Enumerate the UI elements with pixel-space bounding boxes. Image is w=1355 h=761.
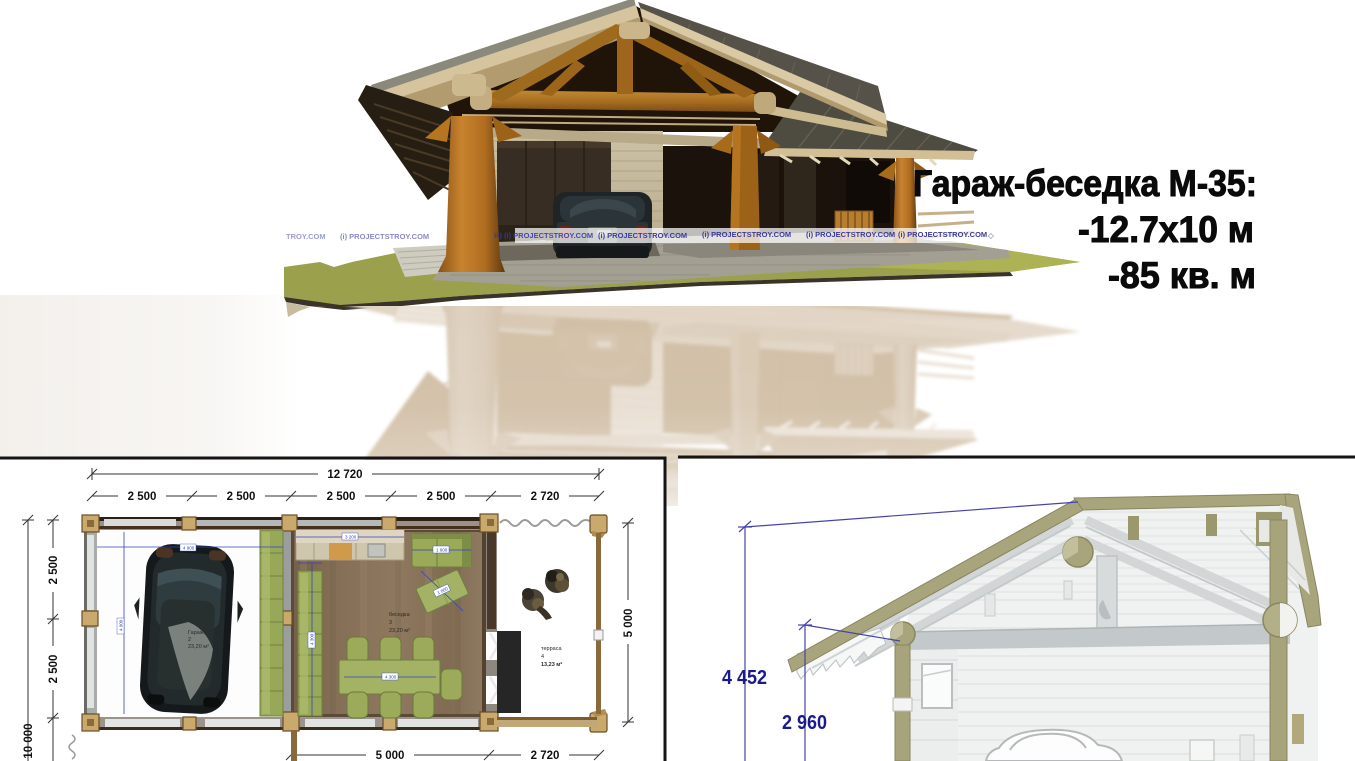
svg-text:2 500: 2 500: [48, 655, 60, 684]
svg-text:2 500: 2 500: [48, 556, 60, 585]
svg-text:Гараж: Гараж: [188, 630, 204, 636]
svg-text:-85 кв. м: -85 кв. м: [1108, 255, 1256, 296]
svg-text:3: 3: [389, 620, 392, 626]
svg-text:4 900: 4 900: [183, 546, 195, 551]
svg-text:2 960: 2 960: [782, 712, 827, 734]
svg-text:4 900: 4 900: [119, 619, 124, 631]
svg-text:2: 2: [188, 637, 191, 643]
svg-text:5 000: 5 000: [623, 609, 635, 638]
svg-text:1 600: 1 600: [436, 548, 448, 553]
svg-text:(i) PROJECTSTROY.COM: (i) PROJECTSTROY.COM: [340, 232, 429, 241]
svg-text:2 720: 2 720: [531, 491, 560, 503]
svg-text:Гараж-беседка М-35:: Гараж-беседка М-35:: [913, 163, 1257, 204]
svg-text:4: 4: [541, 654, 544, 660]
svg-text:R) (i) PROJECTSTROY.COM: R) (i) PROJECTSTROY.COM: [494, 231, 593, 240]
svg-text:23,20 м²: 23,20 м²: [188, 644, 209, 650]
svg-text:-12.7х10 м: -12.7х10 м: [1078, 209, 1254, 250]
svg-text:2 720: 2 720: [531, 750, 560, 761]
svg-text:23,20 м²: 23,20 м²: [389, 628, 410, 634]
svg-text:TROY.COM: TROY.COM: [286, 232, 326, 241]
svg-text:4 452: 4 452: [722, 667, 767, 689]
svg-text:13,23 м²: 13,23 м²: [541, 661, 562, 668]
svg-text:3 200: 3 200: [345, 535, 357, 540]
svg-text:4 300: 4 300: [385, 675, 397, 680]
svg-text:2 500: 2 500: [128, 491, 157, 503]
svg-text:2 500: 2 500: [227, 491, 256, 503]
svg-text:(i) PROJECTSTROY.COM: (i) PROJECTSTROY.COM: [598, 231, 687, 240]
svg-text:(i) PROJECTSTROY.COM: (i) PROJECTSTROY.COM: [702, 230, 791, 239]
svg-text:терраса: терраса: [541, 646, 562, 652]
svg-text:беседка: беседка: [389, 612, 411, 618]
svg-text:(i) PROJECTSTROY.COM: (i) PROJECTSTROY.COM: [806, 230, 895, 239]
svg-text:4 300: 4 300: [310, 633, 315, 645]
svg-text:2 500: 2 500: [427, 491, 456, 503]
svg-text:10 000: 10 000: [23, 723, 35, 758]
svg-text:2 500: 2 500: [327, 491, 356, 503]
svg-text:12 720: 12 720: [327, 469, 362, 481]
svg-text:5 000: 5 000: [376, 750, 405, 761]
svg-text:(i) PROJECTSTROY.COM: (i) PROJECTSTROY.COM: [898, 230, 987, 239]
